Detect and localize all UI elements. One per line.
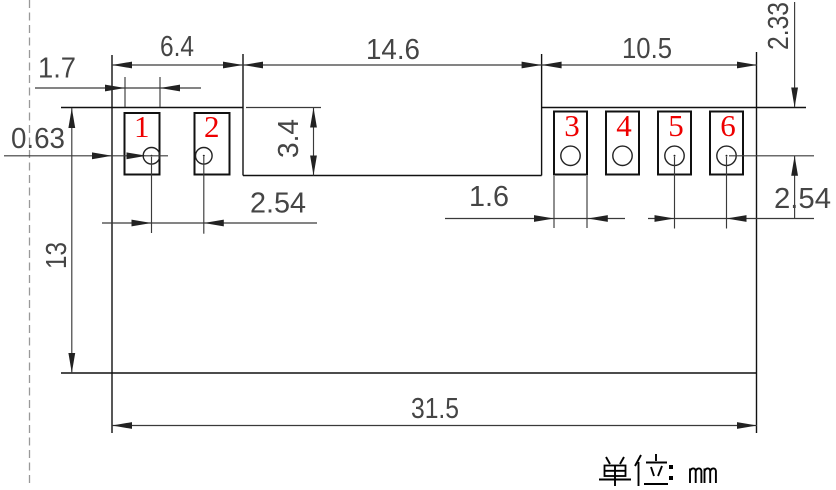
svg-text:2.54: 2.54 [774, 183, 831, 215]
svg-text:6: 6 [720, 108, 736, 143]
svg-text:2: 2 [204, 109, 220, 144]
svg-text:1.6: 1.6 [469, 181, 509, 213]
svg-text:0.63: 0.63 [11, 123, 65, 155]
svg-text:1.7: 1.7 [38, 53, 76, 85]
svg-text:13: 13 [41, 242, 73, 269]
svg-text:3.4: 3.4 [273, 119, 305, 158]
svg-text:10.5: 10.5 [622, 33, 672, 65]
svg-text:14.6: 14.6 [366, 34, 420, 66]
svg-text:1: 1 [134, 109, 150, 144]
svg-text:6.4: 6.4 [160, 31, 194, 63]
svg-text:31.5: 31.5 [411, 393, 459, 425]
svg-text:5: 5 [668, 108, 684, 143]
svg-text:4: 4 [616, 108, 632, 143]
svg-text:2.54: 2.54 [250, 188, 306, 220]
svg-text:3: 3 [564, 108, 580, 143]
svg-text:2.33: 2.33 [763, 2, 795, 50]
